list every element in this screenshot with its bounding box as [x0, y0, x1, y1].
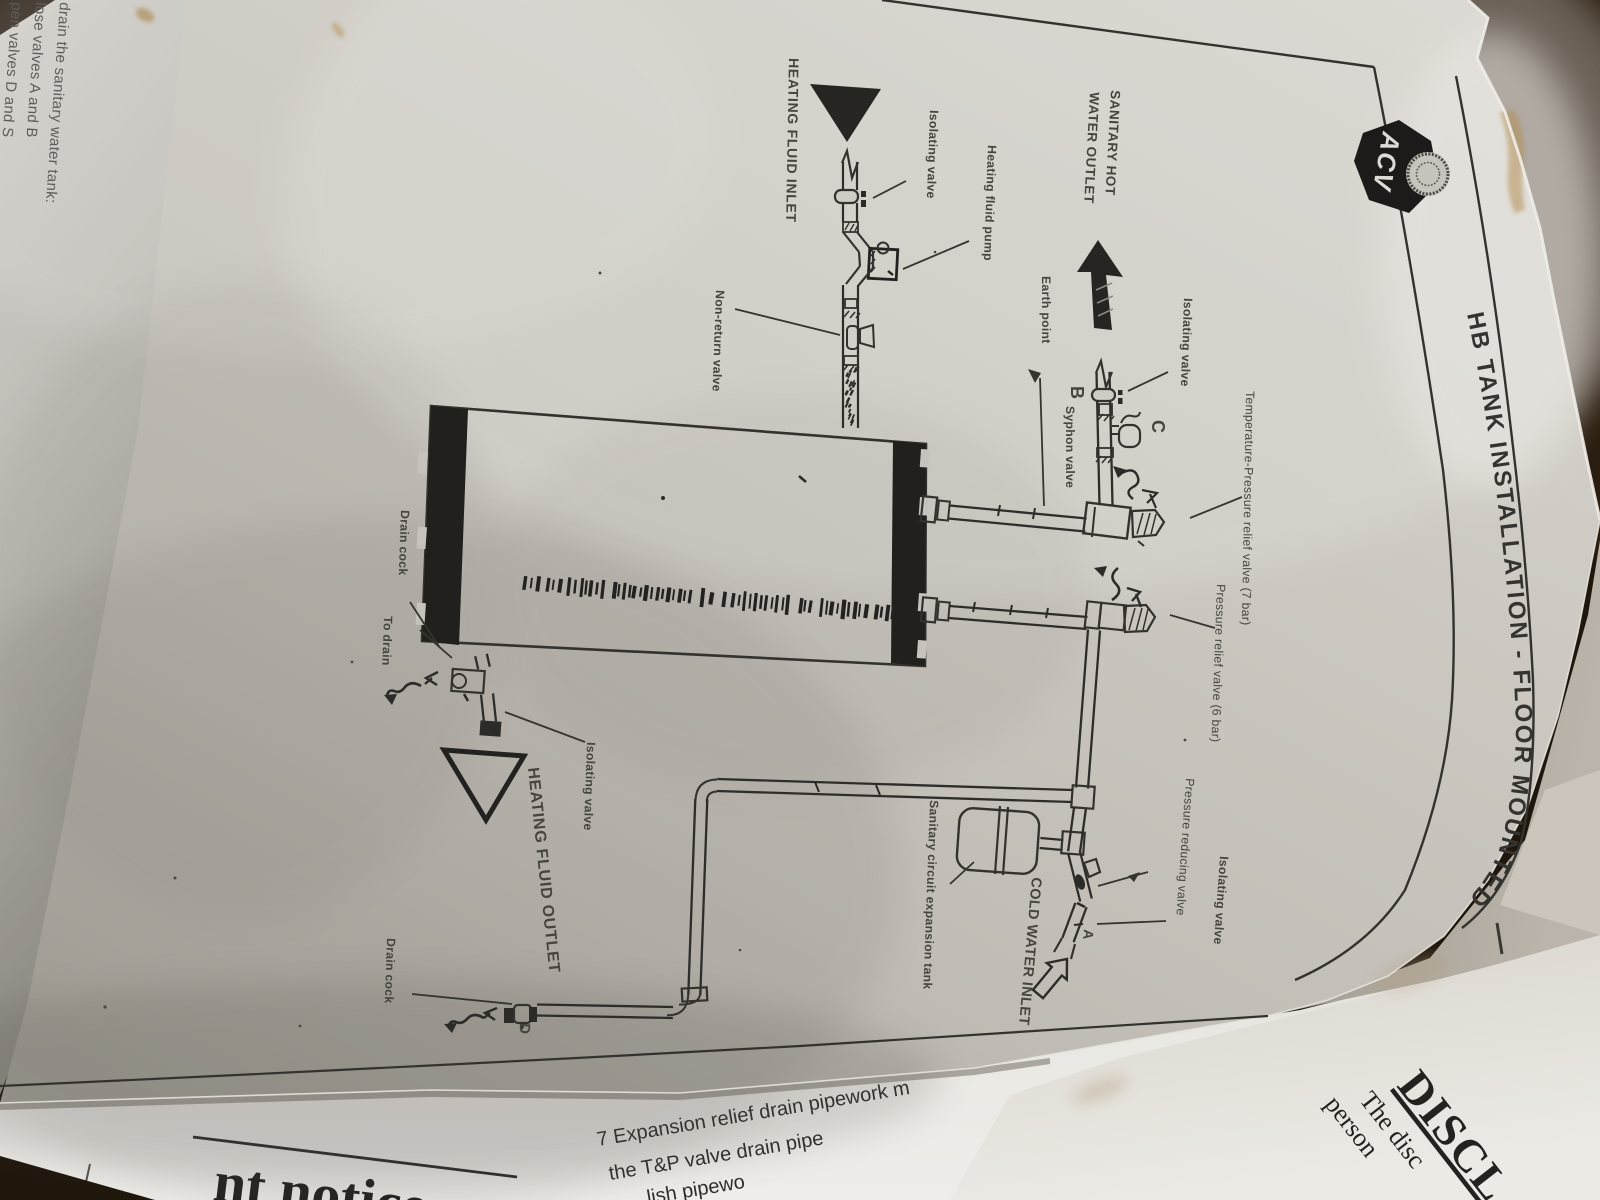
- svg-text:B: B: [1067, 386, 1087, 399]
- svg-text:HEATING FLUID INLET: HEATING FLUID INLET: [783, 58, 802, 223]
- svg-text:D: D: [516, 1023, 533, 1035]
- svg-text:Drain cock: Drain cock: [396, 510, 412, 576]
- svg-text:Earth point: Earth point: [1039, 276, 1053, 344]
- svg-text:To drain: To drain: [379, 616, 395, 666]
- svg-text:C: C: [1148, 420, 1168, 433]
- svg-text:Drain cock: Drain cock: [382, 938, 398, 1004]
- svg-text:Syphon valve: Syphon valve: [1063, 406, 1077, 488]
- svg-text:A: A: [1080, 929, 1097, 941]
